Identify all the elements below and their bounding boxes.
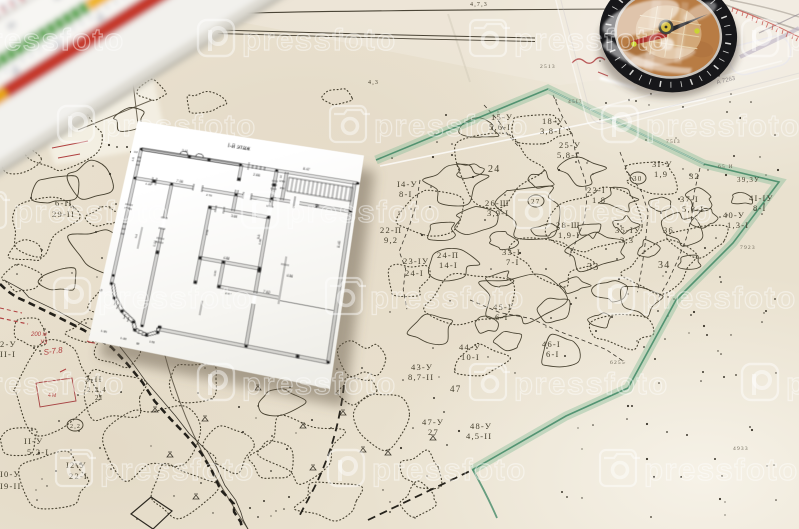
- svg-text:pressfoto: pressfoto: [14, 194, 169, 229]
- svg-text:pressfoto: pressfoto: [642, 280, 797, 315]
- svg-text:pressfoto: pressfoto: [514, 366, 669, 401]
- svg-text:pressfoto: pressfoto: [242, 22, 397, 57]
- svg-text:pressfoto: pressfoto: [372, 452, 527, 487]
- svg-text:pressfoto: pressfoto: [374, 108, 529, 143]
- svg-text:pressfoto: pressfoto: [370, 280, 525, 315]
- svg-text:pressfoto: pressfoto: [0, 22, 125, 57]
- svg-text:pressfoto: pressfoto: [242, 366, 397, 401]
- svg-text:pressfoto: pressfoto: [0, 366, 125, 401]
- svg-text:pressfoto: pressfoto: [514, 22, 669, 57]
- svg-text:pressfoto: pressfoto: [102, 108, 257, 143]
- svg-text:pressfoto: pressfoto: [286, 194, 441, 229]
- svg-text:pressfoto: pressfoto: [786, 366, 799, 401]
- svg-text:pressfoto: pressfoto: [100, 452, 255, 487]
- svg-text:pressfoto: pressfoto: [644, 452, 799, 487]
- svg-text:pressfoto: pressfoto: [646, 108, 799, 143]
- svg-text:pressfoto: pressfoto: [786, 22, 799, 57]
- svg-text:pressfoto: pressfoto: [98, 280, 253, 315]
- svg-text:pressfoto: pressfoto: [558, 194, 713, 229]
